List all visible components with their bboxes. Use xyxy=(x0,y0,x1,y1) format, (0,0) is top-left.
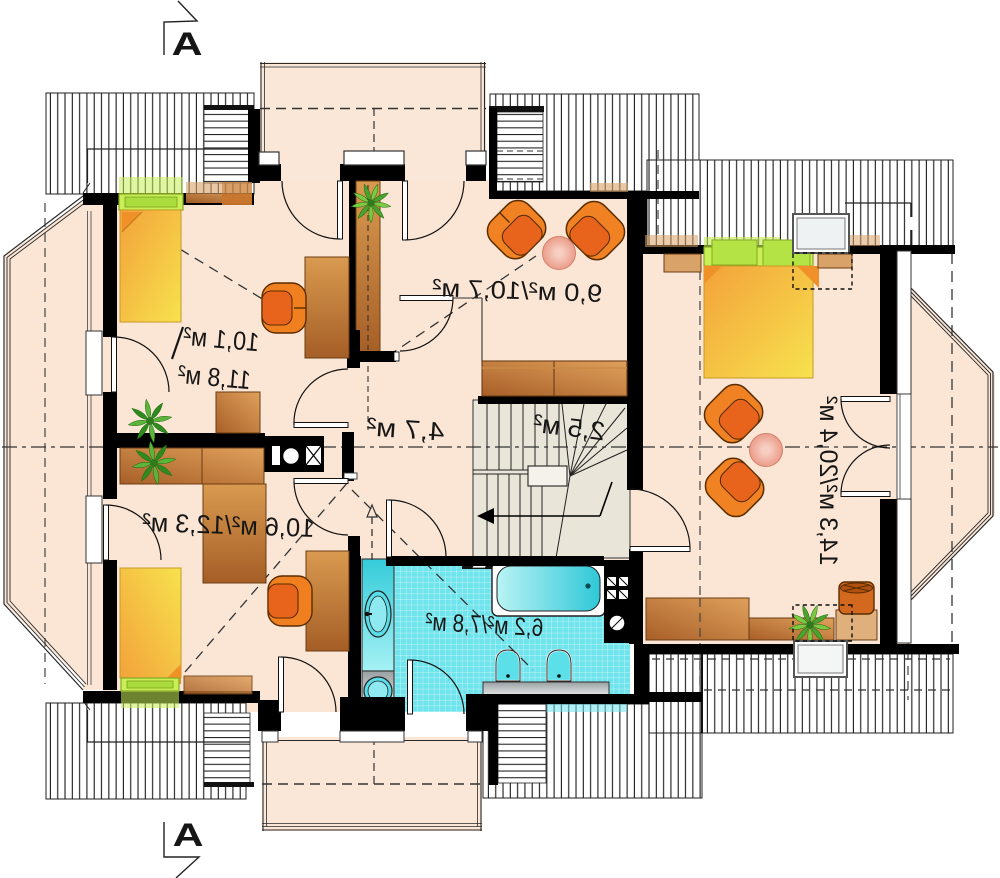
svg-text:14,3 м²/20,4 м²: 14,3 м²/20,4 м² xyxy=(814,396,842,566)
svg-text:9,0 м²/10,7 м²: 9,0 м²/10,7 м² xyxy=(432,274,603,308)
svg-text:A: A xyxy=(173,817,204,853)
svg-text:11,8 м²: 11,8 м² xyxy=(176,359,252,395)
svg-text:4,7 м²: 4,7 м² xyxy=(365,411,445,446)
svg-text:A: A xyxy=(172,26,203,62)
svg-text:10,6 м²/12,3 м²: 10,6 м²/12,3 м² xyxy=(142,507,315,543)
